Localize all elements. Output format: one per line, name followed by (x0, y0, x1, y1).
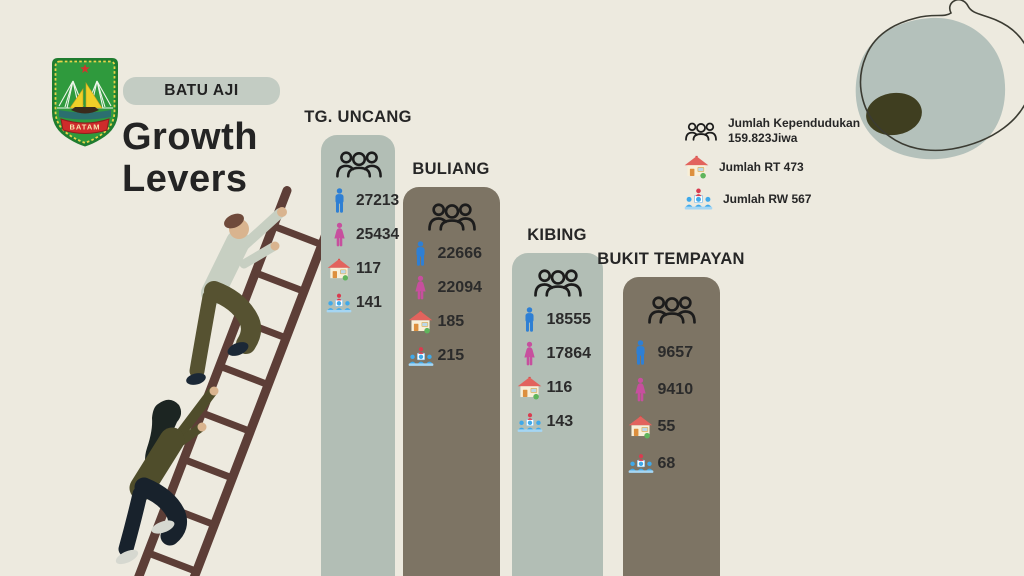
stat-row-male: 9657 (628, 334, 716, 371)
stat-row-rw: 215 (408, 339, 496, 373)
rt-count: 185 (438, 313, 465, 331)
house-icon (408, 310, 433, 334)
community-icon (628, 453, 654, 474)
male-icon (523, 307, 536, 333)
male-icon (414, 241, 427, 267)
batam-city-logo: BATAM (50, 56, 120, 148)
rw-count: 215 (438, 347, 465, 365)
community-icon (408, 346, 434, 367)
group-people-icon (533, 267, 583, 297)
stat-row-rt: 185 (408, 305, 496, 339)
group-people-icon (335, 149, 383, 178)
bar-body: 22666 22094 185 215 (403, 187, 500, 576)
bar-body: 18555 17864 116 143 (512, 253, 603, 576)
house-icon (628, 415, 653, 439)
community-icon (326, 293, 352, 313)
logo-banner-text: BATAM (70, 123, 101, 132)
stat-row-female: 25434 (326, 218, 391, 252)
legend: Jumlah Kependudukan 159.823Jiwa Jumlah R… (684, 116, 860, 210)
district-badge-label: BATU AJI (164, 82, 239, 100)
bar-title: BULIANG (412, 160, 489, 179)
stat-row-rt: 117 (326, 252, 391, 286)
group-people-icon (684, 121, 718, 141)
page-title-line2: Levers (122, 158, 258, 200)
rt-count: 116 (547, 379, 573, 397)
bar-title: TG. UNCANG (304, 108, 412, 127)
female-icon (522, 341, 537, 367)
stat-row-rt: 116 (517, 371, 599, 405)
bar-title: KIBING (527, 226, 587, 245)
group-people-icon (647, 294, 697, 324)
stat-row-rt: 55 (628, 408, 716, 445)
legend-item-rw: Jumlah RW 567 (684, 188, 860, 210)
blob-decoration (856, 18, 1005, 159)
female-count: 17864 (547, 345, 592, 363)
stat-row-male: 18555 (517, 303, 599, 337)
legend-rt-text: Jumlah RT 473 (719, 160, 804, 175)
stat-row-female: 17864 (517, 337, 599, 371)
female-icon (332, 222, 347, 248)
page-title-line1: Growth (122, 116, 258, 158)
stat-row-rw: 141 (326, 286, 391, 320)
community-icon (517, 412, 543, 433)
male-count: 9657 (658, 344, 694, 362)
bar-column-bukit-tempayan: BUKIT TEMPAYAN 9657 9410 55 68 (601, 250, 741, 576)
district-badge: BATU AJI (123, 77, 280, 105)
female-icon (633, 377, 648, 403)
legend-item-population: Jumlah Kependudukan 159.823Jiwa (684, 116, 860, 146)
rw-count: 68 (658, 455, 676, 473)
legend-item-rt: Jumlah RT 473 (684, 155, 860, 179)
rt-count: 55 (658, 418, 676, 436)
stat-row-male: 27213 (326, 184, 391, 218)
page-title: Growth Levers (122, 116, 258, 200)
stat-row-female: 22094 (408, 271, 496, 305)
female-count: 9410 (658, 381, 694, 399)
bar-body: 9657 9410 55 68 (623, 277, 720, 576)
stat-row-male: 22666 (408, 237, 496, 271)
legend-rw-text: Jumlah RW 567 (723, 192, 811, 207)
male-icon (634, 340, 647, 366)
male-count: 22666 (438, 245, 483, 263)
male-icon (333, 188, 346, 214)
house-icon (517, 376, 542, 400)
rw-count: 141 (356, 294, 382, 312)
stat-row-rw: 143 (517, 405, 599, 439)
rw-count: 143 (547, 413, 574, 431)
stat-row-rw: 68 (628, 445, 716, 482)
legend-population-text: Jumlah Kependudukan 159.823Jiwa (728, 116, 860, 146)
stat-row-female: 9410 (628, 371, 716, 408)
community-icon (684, 188, 713, 210)
house-icon (327, 258, 351, 281)
female-count: 22094 (438, 279, 483, 297)
male-count: 18555 (547, 311, 592, 329)
female-icon (413, 275, 428, 301)
bar-title: BUKIT TEMPAYAN (597, 250, 745, 269)
house-icon (684, 155, 709, 179)
rt-count: 117 (356, 260, 381, 278)
group-people-icon (427, 201, 477, 231)
